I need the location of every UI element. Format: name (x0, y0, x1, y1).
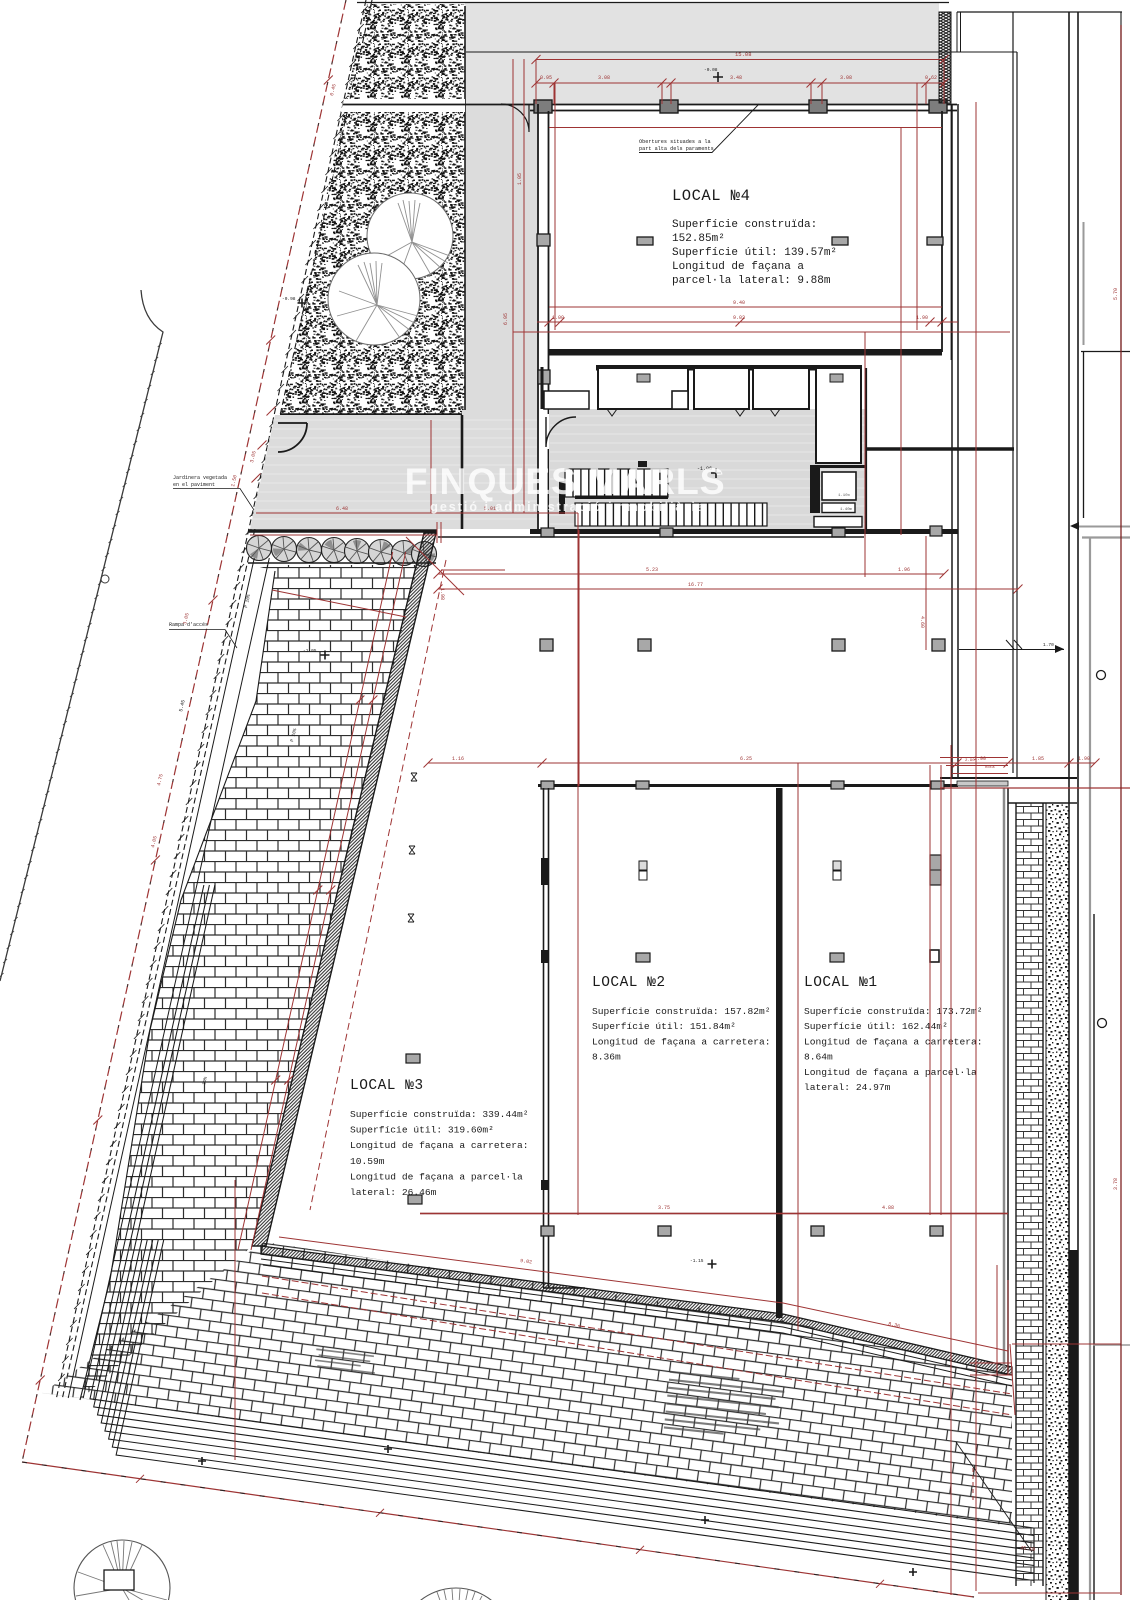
svg-text:0.95: 0.95 (540, 75, 552, 81)
svg-text:1.50: 1.50 (230, 474, 239, 487)
svg-text:4.60: 4.60 (919, 616, 925, 628)
svg-text:1.96: 1.96 (898, 567, 910, 573)
svg-text:3.48: 3.48 (730, 75, 742, 81)
svg-text:9.02: 9.02 (520, 1258, 533, 1265)
svg-text:1.40m: 1.40m (840, 508, 853, 512)
svg-text:3.08: 3.08 (598, 75, 610, 81)
svg-text:6.95: 6.95 (503, 313, 509, 325)
svg-text:5.23: 5.23 (646, 567, 658, 573)
svg-text:1.70: 1.70 (1043, 642, 1054, 648)
svg-text:1.16: 1.16 (452, 756, 464, 762)
svg-text:FINQUES MARLS: FINQUES MARLS (405, 460, 726, 502)
svg-text:nota: nota (985, 766, 995, 770)
svg-text:Longitud de façana a carretera: Longitud de façana a carretera: (350, 1140, 528, 1151)
svg-text:4.75: 4.75 (156, 773, 165, 786)
svg-text:lateral: 26.46m: lateral: 26.46m (350, 1187, 437, 1198)
svg-text:Superfície construïda: 339.44m: Superfície construïda: 339.44m² (350, 1109, 528, 1120)
svg-text:8.64m: 8.64m (804, 1052, 833, 1063)
svg-text:15.08: 15.08 (735, 51, 752, 58)
svg-text:parcel·la lateral: 9.88m: parcel·la lateral: 9.88m (672, 275, 831, 287)
svg-text:Longitud de façana a parcel·la: Longitud de façana a parcel·la (350, 1171, 523, 1182)
svg-text:-1.05: -1.05 (303, 648, 317, 654)
svg-text:5.45: 5.45 (178, 699, 187, 712)
svg-text:1.00: 1.00 (552, 315, 564, 321)
svg-text:Longitud de façana a: Longitud de façana a (672, 261, 804, 273)
svg-text:0.45: 0.45 (329, 83, 338, 96)
svg-text:lateral: 24.97m: lateral: 24.97m (804, 1082, 891, 1093)
svg-text:-1.15: -1.15 (690, 1258, 704, 1264)
svg-text:16.77: 16.77 (688, 582, 703, 588)
svg-text:Jardinera vegetada: Jardinera vegetada (173, 475, 227, 481)
svg-text:9.40: 9.40 (733, 300, 745, 306)
svg-text:4.05: 4.05 (150, 835, 159, 848)
svg-text:3.08: 3.08 (840, 75, 852, 81)
svg-text:1.05: 1.05 (517, 173, 523, 185)
svg-text:5.70: 5.70 (1113, 288, 1119, 300)
svg-text:1.90: 1.90 (916, 315, 928, 321)
svg-text:-0.98: -0.98 (282, 296, 296, 302)
svg-text:9.02: 9.02 (733, 315, 745, 321)
svg-text:LOCAL №4: LOCAL №4 (672, 187, 750, 205)
svg-text:1.85: 1.85 (1032, 756, 1044, 762)
svg-text:6.48: 6.48 (336, 506, 348, 512)
svg-text:2.90: 2.90 (965, 759, 975, 763)
svg-text:Superfície útil: 151.84m²: Superfície útil: 151.84m² (592, 1021, 736, 1032)
svg-text:4.88: 4.88 (882, 1205, 894, 1211)
svg-text:1.90: 1.90 (1078, 756, 1090, 762)
svg-text:part alta dels paraments: part alta dels paraments (639, 146, 714, 152)
svg-text:gestió i administració immobil: gestió i administració immobiliària (430, 500, 706, 514)
svg-text:Longitud de façana a carretera: Longitud de façana a carretera: (592, 1036, 770, 1047)
svg-text:Superfície construïda:: Superfície construïda: (672, 219, 817, 231)
svg-text:LOCAL №3: LOCAL №3 (350, 1078, 424, 1094)
svg-text:10.59m: 10.59m (350, 1156, 385, 1167)
svg-text:3.78: 3.78 (1113, 1178, 1119, 1190)
svg-text:152.85m²: 152.85m² (672, 233, 725, 245)
svg-text:6.25: 6.25 (740, 756, 752, 762)
svg-text:3.75: 3.75 (658, 1205, 670, 1211)
svg-text:Obertures situades a la: Obertures situades a la (639, 139, 711, 145)
svg-text:3.05: 3.05 (249, 450, 258, 463)
svg-text:LOCAL №2: LOCAL №2 (592, 975, 666, 991)
svg-text:8.36: 8.36 (888, 1321, 901, 1329)
svg-text:Superfície construïda: 173.72m: Superfície construïda: 173.72m² (804, 1006, 982, 1017)
svg-text:1.98: 1.98 (439, 588, 445, 600)
svg-text:Superfície útil: 319.60m²: Superfície útil: 319.60m² (350, 1125, 494, 1136)
svg-text:Longitud de façana a carretera: Longitud de façana a carretera: (804, 1036, 982, 1047)
svg-text:Superfície construïda: 157.82m: Superfície construïda: 157.82m² (592, 1006, 770, 1017)
svg-text:0.62: 0.62 (925, 75, 937, 81)
svg-text:8.36m: 8.36m (592, 1052, 621, 1063)
svg-text:en el paviment: en el paviment (173, 482, 215, 488)
svg-text:-0.08: -0.08 (704, 67, 718, 73)
svg-text:Rampa d'accés: Rampa d'accés (169, 622, 208, 628)
svg-text:LOCAL №1: LOCAL №1 (804, 975, 878, 991)
svg-text:Superfície útil: 162.44m²: Superfície útil: 162.44m² (804, 1021, 948, 1032)
svg-text:Superfície útil: 139.57m²: Superfície útil: 139.57m² (672, 247, 837, 259)
svg-text:1.10x: 1.10x (838, 494, 851, 498)
